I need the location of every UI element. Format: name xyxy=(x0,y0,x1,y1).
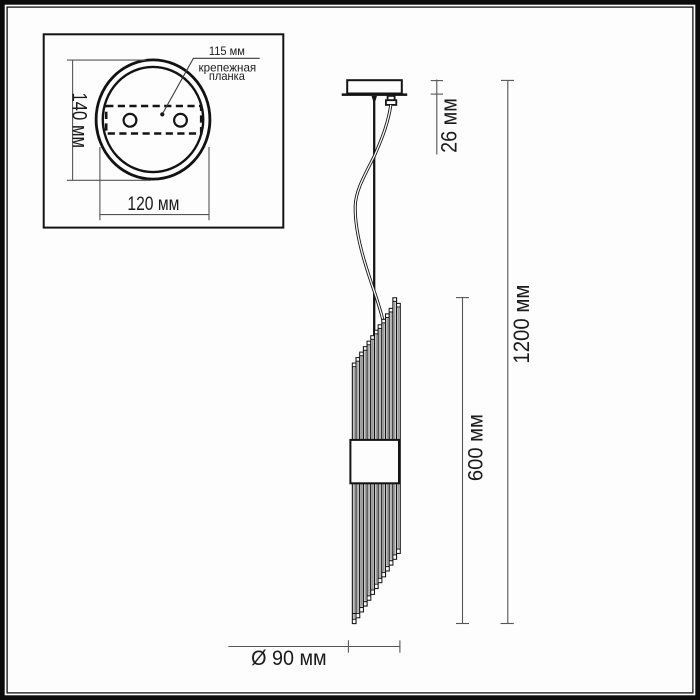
svg-text:140 мм: 140 мм xyxy=(67,92,90,148)
svg-text:Ø 90 мм: Ø 90 мм xyxy=(251,646,327,670)
svg-text:планка: планка xyxy=(209,69,245,83)
svg-text:600 мм: 600 мм xyxy=(464,414,487,481)
svg-text:115 мм: 115 мм xyxy=(209,44,245,58)
svg-text:1200 мм: 1200 мм xyxy=(509,285,534,364)
svg-text:26 мм: 26 мм xyxy=(437,98,462,153)
svg-text:120 мм: 120 мм xyxy=(127,193,179,215)
